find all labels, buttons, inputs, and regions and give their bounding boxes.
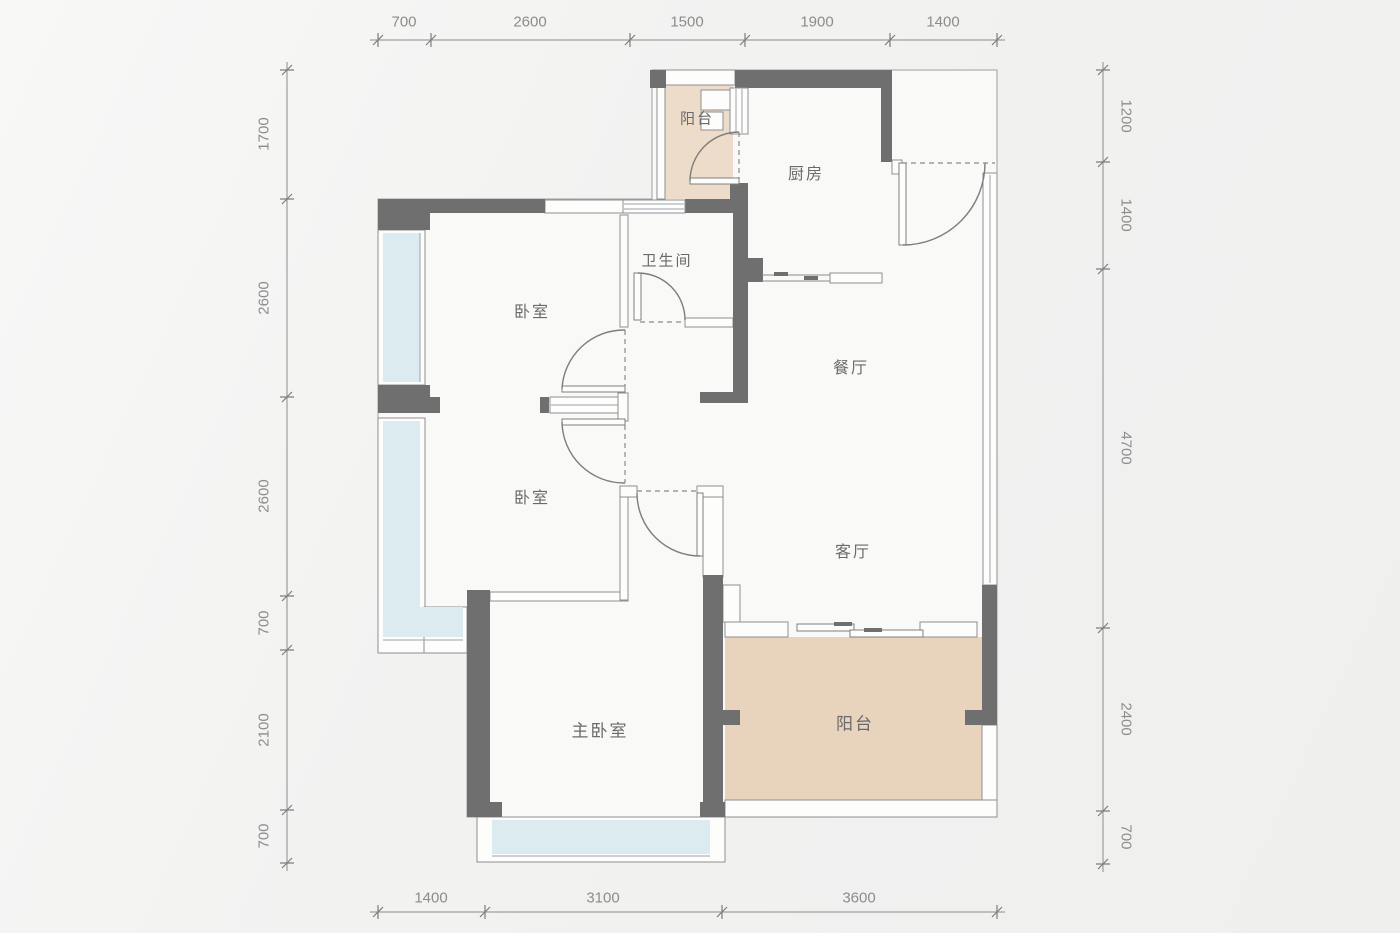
dim-top-1900: 1900: [800, 14, 833, 31]
dim-left-700a: 700: [256, 610, 273, 635]
label-kitchen: 厨房: [788, 160, 824, 184]
label-bedroom2: 卧室: [514, 484, 550, 508]
dim-right-1200: 1200: [1118, 99, 1135, 132]
door-leaf-bedroom1: [562, 386, 625, 392]
dim-bottom-3600: 3600: [842, 890, 875, 907]
dim-top-1400: 1400: [926, 14, 959, 31]
label-bedroom1: 卧室: [514, 298, 550, 322]
dim-right-2400: 2400: [1118, 702, 1135, 735]
dim-left-2100: 2100: [256, 713, 273, 746]
window-kitchen-balcony: [730, 88, 748, 134]
floor-plan-drawing: [0, 0, 1400, 933]
dim-left-700b: 700: [256, 823, 273, 848]
floor-plan-canvas: 阳台 厨房 卫生间 卧室 餐厅 卧室 客厅 主卧室 阳台 700 2600 15…: [0, 0, 1400, 933]
label-living-room: 客厅: [835, 538, 871, 562]
dim-top-700: 700: [391, 14, 416, 31]
dim-right-1400: 1400: [1118, 198, 1135, 231]
dim-right-700: 700: [1118, 824, 1135, 849]
dim-bottom-1400: 1400: [414, 890, 447, 907]
door-leaf-bedroom2: [562, 419, 625, 425]
dim-right-4700: 4700: [1118, 431, 1135, 464]
dim-left-2600a: 2600: [256, 281, 273, 314]
dim-top-1500: 1500: [670, 14, 703, 31]
door-leaf-balcony-top: [690, 178, 739, 184]
label-master-bedroom: 主卧室: [572, 717, 629, 742]
dim-bottom-3100: 3100: [586, 890, 619, 907]
kitchen-counter: [830, 273, 882, 283]
window-bathroom-top: [623, 200, 685, 213]
dim-left-1700: 1700: [256, 117, 273, 150]
dim-top-2600: 2600: [513, 14, 546, 31]
label-balcony-top: 阳台: [680, 108, 714, 129]
door-leaf-bathroom: [634, 273, 641, 320]
dim-left-2600b: 2600: [256, 479, 273, 512]
label-bathroom: 卫生间: [641, 250, 692, 271]
label-balcony-bottom: 阳台: [836, 710, 874, 735]
sliding-door-balcony-panel2: [850, 630, 923, 637]
door-leaf-entry: [899, 163, 906, 245]
door-leaf-master: [697, 493, 703, 556]
label-dining-room: 餐厅: [833, 354, 869, 378]
